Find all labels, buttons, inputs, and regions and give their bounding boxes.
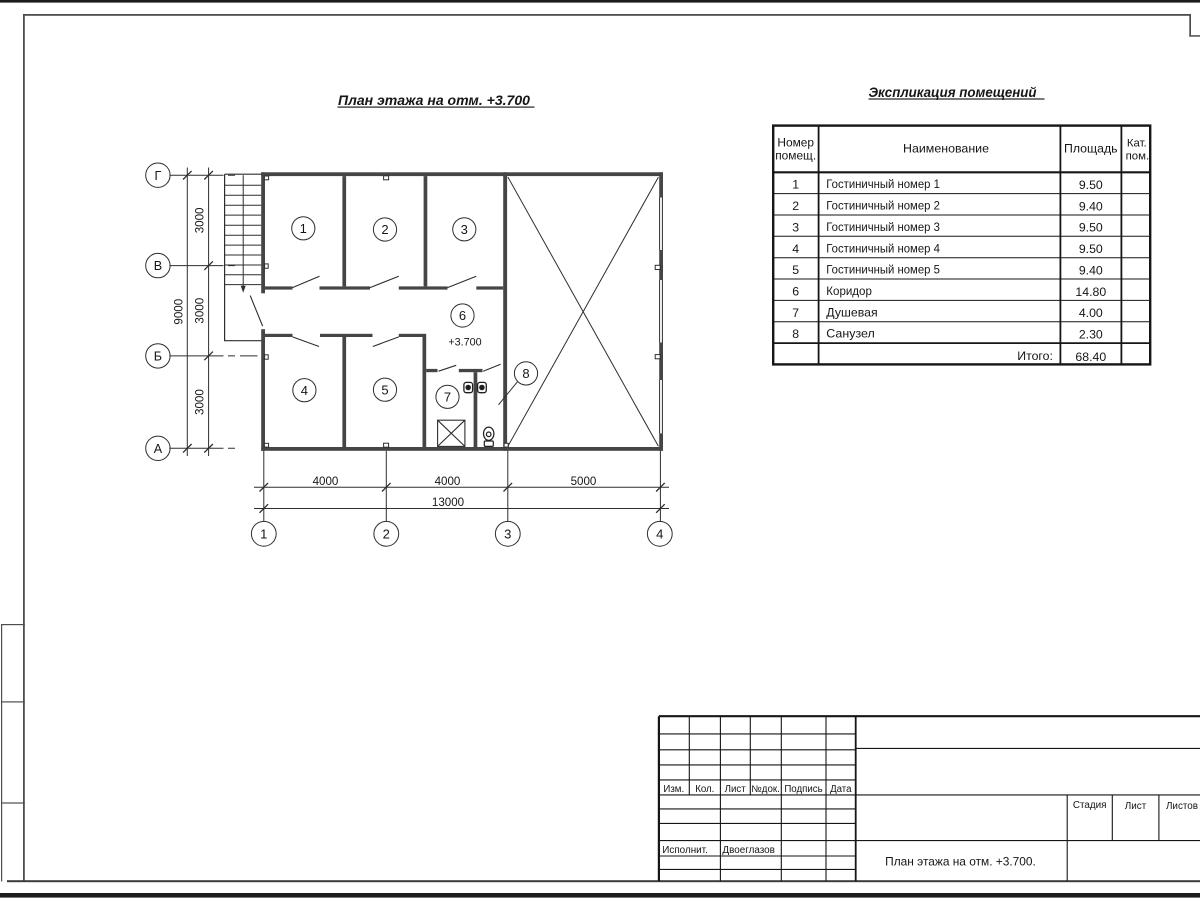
svg-text:Стадия: Стадия [1073,800,1107,811]
svg-text:5: 5 [381,382,388,397]
svg-text:Кол.: Кол. [695,784,714,795]
svg-text:4000: 4000 [435,475,461,488]
svg-text:6: 6 [459,308,466,323]
svg-text:Экспликация помещений: Экспликация помещений [869,84,1037,100]
svg-text:14.80: 14.80 [1075,285,1106,299]
svg-text:План этажа на отм. +3.700: План этажа на отм. +3.700 [338,92,530,108]
svg-text:3: 3 [792,220,799,234]
svg-text:7: 7 [792,306,799,320]
svg-text:2.30: 2.30 [1079,328,1103,342]
svg-text:9.50: 9.50 [1079,178,1103,192]
svg-text:Гостиничный номер 4: Гостиничный номер 4 [826,241,940,255]
svg-text:А: А [154,442,163,456]
svg-text:Номер: Номер [777,135,814,149]
svg-text:2: 2 [381,222,388,237]
svg-text:+3.700: +3.700 [448,336,481,348]
svg-text:9.50: 9.50 [1079,221,1103,235]
svg-text:Двоеглазов: Двоеглазов [722,845,775,856]
svg-text:9.40: 9.40 [1079,199,1103,213]
svg-text:Душевая: Душевая [826,305,877,319]
svg-text:8: 8 [792,327,799,341]
svg-text:пом.: пом. [1126,151,1150,163]
svg-text:Итого:: Итого: [1017,349,1053,363]
svg-text:Лист: Лист [725,784,747,795]
svg-text:№док.: №док. [751,784,779,795]
svg-text:4.00: 4.00 [1079,306,1103,320]
svg-text:6: 6 [792,285,799,299]
svg-text:Наименование: Наименование [903,141,989,155]
svg-text:Коридор: Коридор [826,284,872,298]
svg-text:Гостиничный номер 2: Гостиничный номер 2 [826,199,940,213]
svg-text:Гостиничный номер 3: Гостиничный номер 3 [826,220,940,234]
svg-text:1: 1 [792,178,799,192]
svg-text:Лист: Лист [1125,801,1147,812]
svg-text:4: 4 [656,526,663,541]
svg-text:4: 4 [301,383,308,398]
svg-text:План этажа на отм. +3.700.: План этажа на отм. +3.700. [885,855,1036,869]
svg-text:9.50: 9.50 [1079,242,1103,256]
svg-text:9000: 9000 [172,299,185,325]
svg-text:13000: 13000 [432,496,464,509]
svg-text:4000: 4000 [313,475,339,488]
svg-text:Изм.: Изм. [663,784,684,795]
svg-text:2: 2 [792,199,799,213]
svg-text:3: 3 [461,222,468,237]
svg-text:Гостиничный номер 5: Гостиничный номер 5 [826,263,940,277]
svg-text:Листов: Листов [1166,801,1198,812]
svg-text:5000: 5000 [571,475,597,488]
svg-text:3: 3 [504,526,511,541]
svg-text:Б: Б [154,350,162,364]
svg-text:1: 1 [260,526,267,541]
svg-text:Исполнит.: Исполнит. [662,845,708,856]
svg-text:3000: 3000 [194,389,207,415]
svg-text:3000: 3000 [194,298,207,324]
svg-text:Г: Г [154,169,161,183]
svg-text:3000: 3000 [194,208,207,234]
svg-text:5: 5 [792,263,799,277]
svg-text:9.40: 9.40 [1079,263,1103,277]
svg-text:4: 4 [792,242,799,256]
svg-text:7: 7 [444,390,451,405]
svg-text:8: 8 [522,366,529,381]
svg-text:Дата: Дата [830,784,852,795]
svg-text:помещ.: помещ. [775,149,816,163]
svg-text:Площадь: Площадь [1064,141,1118,155]
svg-text:Кат.: Кат. [1127,137,1147,149]
svg-text:Санузел: Санузел [826,327,875,341]
svg-text:Гостиничный номер 1: Гостиничный номер 1 [826,177,940,191]
svg-text:В: В [154,259,162,273]
svg-text:68.40: 68.40 [1075,350,1106,364]
svg-text:1: 1 [300,221,307,236]
svg-text:2: 2 [383,526,390,541]
svg-text:Подпись: Подпись [784,784,822,795]
